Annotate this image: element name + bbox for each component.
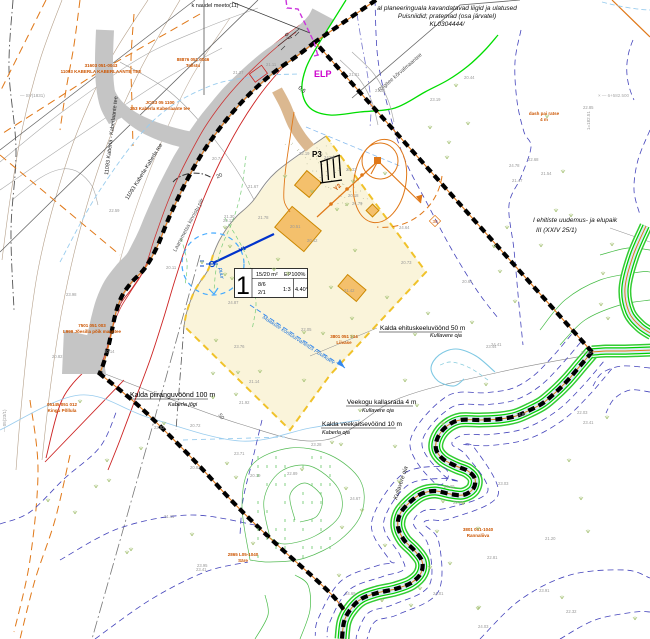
svg-text:21.67: 21.67 [248,184,259,189]
svg-text:31603 051-0043: 31603 051-0043 [85,63,118,68]
svg-text:24.64: 24.64 [399,225,410,230]
svg-text:20.11: 20.11 [166,265,177,270]
svg-text:22.05: 22.05 [301,327,312,332]
svg-text:Kalda veekaitsevöönd 10 m: Kalda veekaitsevöönd 10 m [322,421,402,428]
svg-text:20.72: 20.72 [190,423,201,428]
svg-text:Kullavere oja: Kullavere oja [430,333,462,339]
svg-text:23.95: 23.95 [197,563,208,568]
svg-text:24.01: 24.01 [433,591,444,596]
svg-text:1:3: 1:3 [283,287,291,293]
svg-text:24.69: 24.69 [345,591,356,596]
svg-text:23.28: 23.28 [311,442,322,447]
svg-text:20.33: 20.33 [346,167,357,172]
svg-text:I ehitiste uudemus- ja elupaik: I ehitiste uudemus- ja elupaik [533,217,618,224]
svg-text:22.81: 22.81 [487,555,498,560]
svg-text:JCG3 05 1100: JCG3 05 1100 [145,100,175,105]
svg-text:EP100%: EP100% [284,272,306,278]
svg-text:24.78: 24.78 [509,163,520,168]
svg-text:20.73: 20.73 [401,260,412,265]
svg-text:Kalda piiranguvöönd 100 m: Kalda piiranguvöönd 100 m [130,392,215,399]
svg-text:22.03: 22.03 [577,410,588,415]
svg-text:353 Kaberla Kaberlaante tee: 353 Kaberla Kaberlaante tee [130,106,191,111]
svg-text:20.82: 20.82 [52,354,63,359]
svg-text:21.54: 21.54 [541,171,552,176]
svg-text:23.82: 23.82 [154,425,165,430]
svg-text:15/20 m²: 15/20 m² [256,272,278,278]
svg-text:22.20: 22.20 [581,350,592,355]
svg-text:Kingu Põllula: Kingu Põllula [48,408,77,413]
svg-text:05145 051 012: 05145 051 012 [47,402,78,407]
svg-text:20.61: 20.61 [462,279,473,284]
svg-text:III (XXIV 25/1): III (XXIV 25/1) [536,227,577,234]
svg-text:20.14: 20.14 [104,349,115,354]
svg-text:22.68: 22.68 [528,157,539,162]
svg-text:21.51: 21.51 [375,88,386,93]
svg-text:23.19: 23.19 [430,97,441,102]
svg-text:Säre: Säre [238,558,248,563]
svg-text:88876 051 0046: 88876 051 0046 [177,57,210,62]
svg-text:al planeeringuala kavandatavad: al planeeringuala kavandatavad liigid ja… [377,5,517,12]
svg-text:22.32: 22.32 [566,609,577,614]
svg-text:1: 1 [236,272,250,300]
svg-text:30: 30 [432,219,438,224]
svg-text:3801 051 304: 3801 051 304 [330,334,358,339]
svg-text:8/6: 8/6 [258,282,266,288]
svg-text:Kullavere oja: Kullavere oja [362,408,394,414]
svg-text:dash pai ratse: dash pai ratse [529,111,560,116]
svg-text:Puisniidid; pratemad (osa järv: Puisniidid; pratemad (osa järvatel) [398,13,496,20]
svg-text:Veekogu kallasrada 4 m: Veekogu kallasrada 4 m [347,399,416,406]
svg-text:KL0304444/: KL0304444/ [429,21,465,28]
svg-text:ELP: ELP [314,69,332,79]
svg-text:24.29: 24.29 [444,484,455,489]
svg-text:24.68: 24.68 [324,155,335,160]
svg-text:21.30: 21.30 [224,214,235,219]
svg-text:23.98: 23.98 [66,292,77,297]
svg-text:21.79: 21.79 [352,201,363,206]
svg-text:21.20: 21.20 [545,536,556,541]
svg-text:20.51: 20.51 [290,224,301,229]
svg-text:20.42: 20.42 [307,238,318,243]
svg-text:22.85: 22.85 [583,105,594,110]
svg-text:4.40°: 4.40° [295,287,308,293]
svg-text:2/1: 2/1 [258,290,266,296]
svg-text:24.67: 24.67 [350,496,361,501]
svg-text:21.11: 21.11 [164,514,175,519]
svg-text:24.03: 24.03 [478,624,489,629]
svg-text:k naudel meeto(11): k naudel meeto(11) [192,3,239,9]
svg-text:21.27: 21.27 [233,70,244,75]
svg-text:Rannaliiva: Rannaliiva [467,533,490,538]
svg-text:20.44: 20.44 [464,75,475,80]
svg-text:21.14: 21.14 [249,379,260,384]
svg-text:22.89: 22.89 [287,471,298,476]
svg-text:22.59: 22.59 [109,208,120,213]
svg-text:21.92: 21.92 [239,400,250,405]
svg-text:Kalda ehituskeeluvöönd 50 m: Kalda ehituskeeluvöönd 50 m [380,325,465,332]
svg-text:2865 L05-1040: 2865 L05-1040 [228,552,259,557]
svg-text:Tallstu: Tallstu [186,63,200,68]
svg-text:7501 051 003: 7501 051 003 [78,323,106,328]
svg-text:20.18: 20.18 [348,193,359,198]
svg-text:20.19: 20.19 [250,473,261,478]
svg-text:Kaberla oja: Kaberla oja [322,430,350,436]
svg-text:11093 KABERLA KABERLAANTE TEE: 11093 KABERLA KABERLAANTE TEE [61,69,142,74]
svg-text:24.80: 24.80 [516,412,527,417]
svg-text:23.41: 23.41 [583,420,594,425]
svg-text:24.87: 24.87 [228,300,239,305]
svg-text:23.76: 23.76 [234,344,245,349]
svg-text:Liivase: Liivase [336,340,352,345]
svg-text:21.78: 21.78 [258,215,269,220]
svg-text:23.03: 23.03 [498,481,509,486]
svg-text:21.47: 21.47 [512,178,523,183]
svg-text:× — 6+582.500: × — 6+582.500 [598,93,630,98]
svg-text:1=182.51: 1=182.51 [586,111,591,130]
svg-text:L999 Jõesilla põik maantee: L999 Jõesilla põik maantee [63,329,122,334]
svg-text:24.41: 24.41 [491,342,502,347]
svg-text:20.74: 20.74 [212,156,223,161]
svg-text:23.71: 23.71 [234,451,245,456]
svg-text:22.19: 22.19 [299,151,310,156]
svg-text:21.01: 21.01 [349,72,360,77]
svg-text:Kaberla jõgi: Kaberla jõgi [168,402,198,408]
svg-text:23.91: 23.91 [539,588,550,593]
svg-text:20.82: 20.82 [190,465,201,470]
svg-text:— SV(1831): — SV(1831) [20,93,45,98]
svg-text:P3: P3 [312,150,322,159]
svg-text:— 05(23/1): — 05(23/1) [2,409,7,432]
svg-text:21.42: 21.42 [344,288,355,293]
svg-text:21.11: 21.11 [266,62,277,67]
